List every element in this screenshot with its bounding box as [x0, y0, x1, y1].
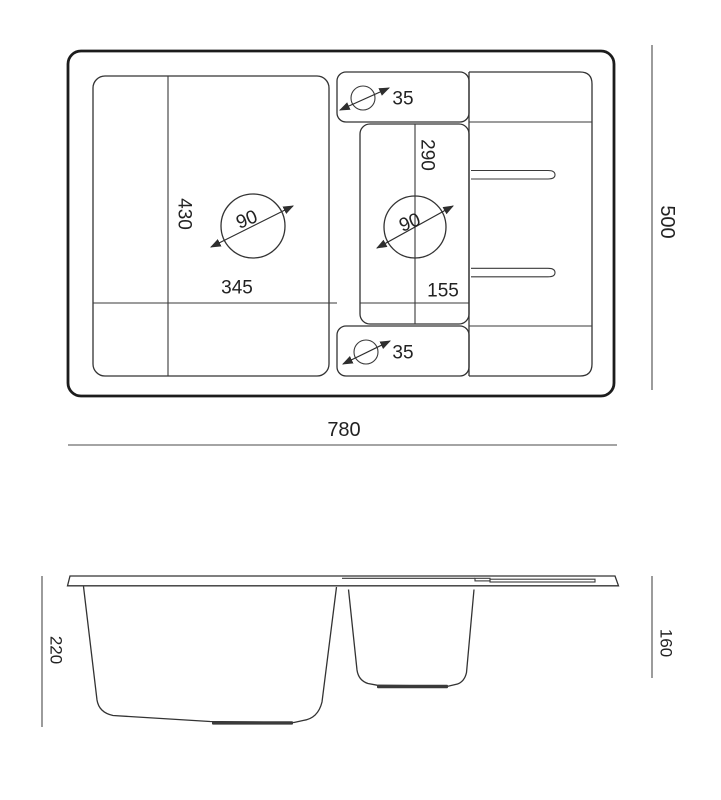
- main-bowl-length-label: 430: [174, 198, 195, 230]
- small-bowl-drain-section: [377, 685, 448, 688]
- sink-technical-drawing: 430 345 90 290 155 90 35 35 780 500: [0, 0, 721, 800]
- main-bowl-width-label: 345: [221, 278, 253, 299]
- main-bowl-outline: [93, 76, 329, 376]
- tap-hole-bottom-diameter-arrow: [343, 341, 390, 364]
- overall-width-label: 780: [327, 419, 360, 441]
- small-drain-diameter-label: 90: [396, 209, 423, 236]
- overall-depth-label: 500: [656, 205, 678, 238]
- drainer-groove-top: [471, 171, 555, 180]
- sink-outer-edge: [68, 51, 614, 396]
- main-bowl-drain-section: [212, 721, 293, 724]
- tap-hole-bottom-circle: [354, 340, 378, 364]
- side-view: [68, 576, 619, 725]
- small-bowl-depth-label: 160: [657, 629, 676, 657]
- main-drain-diameter-label: 90: [233, 206, 260, 233]
- drainer-groove-bottom: [471, 268, 555, 277]
- side-view-dimensions: 220 160: [42, 576, 676, 727]
- drainer-surface-step: [475, 578, 490, 581]
- rim-profile: [68, 576, 619, 586]
- small-bowl-width-label: 155: [427, 281, 459, 302]
- small-bowl-length-label: 290: [417, 139, 438, 171]
- tap-hole-top-diameter-label: 35: [392, 89, 413, 110]
- drainer-area-outline: [469, 72, 592, 376]
- tap-hole-top-circle: [351, 86, 375, 110]
- small-bowl-profile: [349, 590, 475, 687]
- sink-technical-drawing-page: 430 345 90 290 155 90 35 35 780 500: [0, 0, 721, 800]
- main-bowl-profile: [84, 587, 337, 723]
- tap-hole-bottom-diameter-label: 35: [392, 343, 413, 364]
- top-view: [68, 51, 614, 396]
- main-bowl-depth-label: 220: [47, 636, 66, 664]
- tap-hole-top-diameter-arrow: [340, 88, 389, 110]
- drainer-groove-section: [490, 579, 595, 582]
